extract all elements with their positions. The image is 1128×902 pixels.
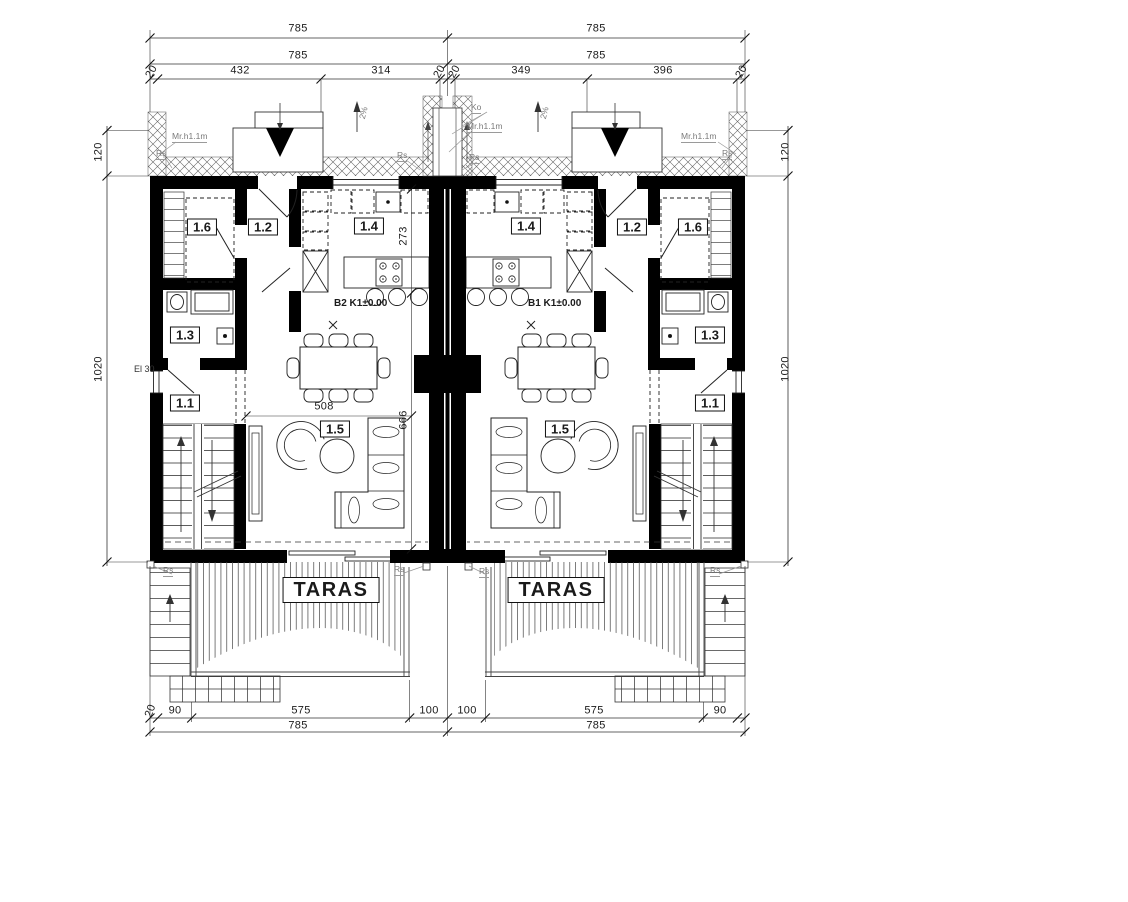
dim-bottom: 100 [457, 706, 476, 717]
downspout-note: Rs [156, 149, 166, 160]
room-label-bath-right: 1.3 [695, 327, 725, 344]
downspout-note: Rs [163, 566, 173, 577]
dim-top: 432 [230, 66, 249, 77]
room-label-kitchen-left: 1.4 [354, 218, 384, 235]
dim-top: 314 [371, 66, 390, 77]
downspout-note: Rs [397, 151, 407, 162]
level-mark-right: B1 K1±0.00 [528, 299, 581, 309]
dim-right: 1020 [781, 356, 792, 382]
dim-top: 785 [288, 24, 307, 35]
dim-top: 396 [653, 66, 672, 77]
dim-top: 785 [288, 51, 307, 62]
room-label-hall-right: 1.2 [617, 219, 647, 236]
downspout-note: Rs [469, 153, 479, 164]
downspout-note: Rs [479, 567, 489, 578]
floor-plan-drawing [0, 0, 1128, 902]
terrace-label-right: TARAS [508, 577, 605, 603]
dim-interior: 273 [399, 226, 410, 245]
dim-bottom: 785 [288, 721, 307, 732]
dim-top: 785 [586, 51, 605, 62]
room-label-entry-left: 1.1 [170, 395, 200, 412]
dim-left: 1020 [94, 356, 105, 382]
terrace-label-left: TARAS [283, 577, 380, 603]
level-mark-left: B2 K1±0.00 [334, 299, 387, 309]
railing-note: Mr.h1.1m [467, 122, 502, 133]
dim-top: 785 [586, 24, 605, 35]
railing-note: Mr.h1.1m [172, 132, 207, 143]
dim-bottom: 90 [714, 706, 727, 717]
room-label-hall-left: 1.2 [248, 219, 278, 236]
dim-top: 349 [511, 66, 530, 77]
room-label-entry-right: 1.1 [695, 395, 725, 412]
dim-bottom: 575 [584, 706, 603, 717]
chimney-block [414, 355, 481, 393]
room-label-wardrobe-right: 1.6 [678, 219, 708, 236]
downspout-note: Rs [722, 149, 732, 160]
dim-interior: 508 [314, 402, 333, 413]
room-label-wardrobe-left: 1.6 [187, 219, 217, 236]
fire-rating-note: El 30 [134, 365, 155, 375]
floor-plan-page: 785 785 785 785 20 432 314 20 20 349 396… [0, 0, 1128, 902]
dim-left: 120 [94, 142, 105, 161]
dim-bottom: 100 [419, 706, 438, 717]
downspout-note: Rs [710, 566, 720, 577]
room-label-living-left: 1.5 [320, 421, 350, 438]
chimney-note: Ko [471, 103, 481, 114]
dim-bottom: 575 [291, 706, 310, 717]
chimney-stack-top [423, 96, 472, 176]
dim-interior: 666 [399, 410, 410, 429]
dim-bottom: 90 [169, 706, 182, 717]
dim-right: 120 [781, 142, 792, 161]
room-label-living-right: 1.5 [545, 421, 575, 438]
room-label-bath-left: 1.3 [170, 327, 200, 344]
dim-bottom: 785 [586, 721, 605, 732]
room-label-kitchen-right: 1.4 [511, 218, 541, 235]
downspout-note: Rs [394, 565, 404, 576]
railing-note: Mr.h1.1m [681, 132, 716, 143]
